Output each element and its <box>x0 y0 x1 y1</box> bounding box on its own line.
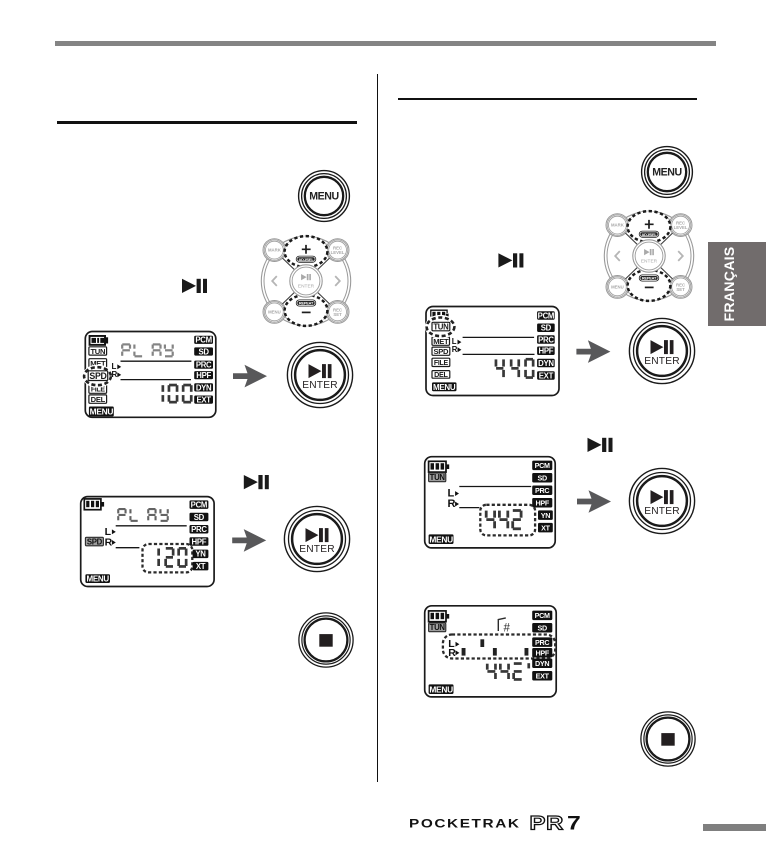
svg-text:HPF: HPF <box>196 371 211 380</box>
svg-text:SD: SD <box>538 623 547 632</box>
svg-text:#: # <box>504 623 511 635</box>
svg-text:PCM: PCM <box>195 336 211 345</box>
svg-text:MENU: MENU <box>429 684 453 694</box>
svg-text:MARK: MARK <box>268 247 282 252</box>
svg-text:TUN: TUN <box>90 347 105 356</box>
svg-text:TUN: TUN <box>430 623 446 632</box>
svg-text:SET: SET <box>676 286 685 291</box>
svg-text:SET: SET <box>334 312 343 317</box>
svg-text:MENU: MENU <box>87 575 110 584</box>
svg-text:ENTER: ENTER <box>644 356 680 367</box>
svg-text:MENU: MENU <box>309 191 339 203</box>
svg-text:PCM: PCM <box>535 611 550 620</box>
svg-text:DYN: DYN <box>196 383 212 392</box>
svg-text:ENTER: ENTER <box>298 283 315 289</box>
svg-text:TUN: TUN <box>433 322 449 331</box>
svg-text:EXT: EXT <box>536 671 550 680</box>
svg-text:POCKETRAK: POCKETRAK <box>409 817 521 830</box>
svg-text:MARK: MARK <box>610 222 624 227</box>
svg-text:SD: SD <box>198 347 209 356</box>
svg-text:DYN: DYN <box>535 659 549 668</box>
svg-text:SD: SD <box>541 324 552 333</box>
svg-text:XT: XT <box>541 523 550 532</box>
svg-text:PRC: PRC <box>196 361 212 370</box>
svg-text:HPF: HPF <box>535 648 549 657</box>
svg-text:SD: SD <box>538 473 547 482</box>
svg-text:MENU: MENU <box>268 309 281 314</box>
svg-text:ENTER: ENTER <box>299 545 335 556</box>
svg-text:PCM: PCM <box>535 461 550 470</box>
svg-text:R: R <box>448 498 456 510</box>
svg-text:PCM: PCM <box>538 311 554 320</box>
svg-text:7: 7 <box>567 812 581 834</box>
svg-text:MENU: MENU <box>611 284 624 289</box>
svg-text:EXT: EXT <box>539 371 554 380</box>
svg-text:HPF: HPF <box>539 347 554 356</box>
svg-text:MENU: MENU <box>652 167 682 179</box>
svg-text:ADJ/SEL: ADJ/SEL <box>641 231 657 236</box>
svg-text:YN: YN <box>195 550 206 559</box>
svg-text:DYN: DYN <box>538 359 554 368</box>
svg-text:HPF: HPF <box>192 537 207 546</box>
svg-text:LEVEL: LEVEL <box>331 250 345 255</box>
svg-text:HPF: HPF <box>535 498 549 507</box>
svg-text:REPEAT: REPEAT <box>641 275 656 280</box>
svg-text:DEL: DEL <box>91 395 106 404</box>
svg-text:PRC: PRC <box>538 335 554 344</box>
svg-text:SPD: SPD <box>89 371 106 381</box>
svg-text:EXT: EXT <box>196 396 211 405</box>
svg-text:PCM: PCM <box>191 501 207 510</box>
svg-text:SPD: SPD <box>87 537 103 546</box>
svg-text:XT: XT <box>196 562 206 571</box>
svg-text:REPEAT: REPEAT <box>299 300 314 305</box>
svg-text:DEL: DEL <box>434 370 448 379</box>
svg-text:PRC: PRC <box>535 486 549 495</box>
svg-text:R: R <box>448 647 456 659</box>
svg-text:ADJ/SEL: ADJ/SEL <box>299 257 315 262</box>
svg-text:ENTER: ENTER <box>640 258 657 264</box>
svg-text:SD: SD <box>194 513 205 522</box>
svg-text:PR: PR <box>530 811 565 833</box>
svg-text:TUN: TUN <box>430 473 446 482</box>
svg-text:MENU: MENU <box>429 534 453 544</box>
svg-text:R: R <box>105 536 113 548</box>
svg-text:SPD: SPD <box>434 347 450 356</box>
svg-text:FILE: FILE <box>434 360 449 367</box>
svg-text:PRC: PRC <box>535 638 549 647</box>
svg-text:ENTER: ENTER <box>302 380 338 391</box>
svg-text:LEVEL: LEVEL <box>673 225 687 230</box>
svg-text:R: R <box>112 370 118 379</box>
svg-text:R: R <box>452 345 458 354</box>
svg-text:ENTER: ENTER <box>644 506 680 517</box>
svg-text:YN: YN <box>541 511 550 520</box>
svg-text:PRC: PRC <box>191 525 207 534</box>
svg-text:MENU: MENU <box>90 407 114 417</box>
svg-text:MENU: MENU <box>433 383 456 392</box>
